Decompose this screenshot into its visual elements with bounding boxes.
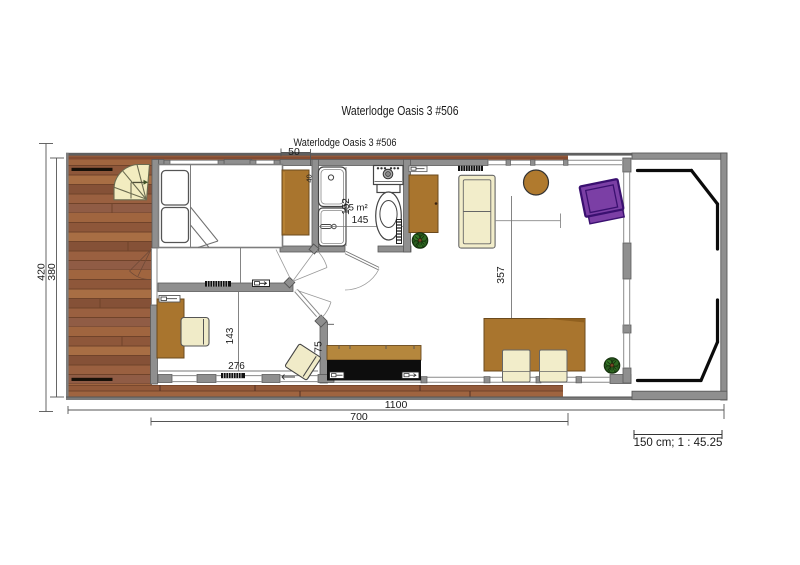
svg-text:357: 357 xyxy=(495,266,507,284)
svg-text:50: 50 xyxy=(288,146,300,158)
svg-text:276: 276 xyxy=(228,361,245,372)
svg-text:40: 40 xyxy=(305,174,314,182)
svg-text:380: 380 xyxy=(46,263,58,281)
svg-text:Waterlodge Oasis 3 #506: Waterlodge Oasis 3 #506 xyxy=(342,104,459,118)
svg-text:145: 145 xyxy=(352,215,369,226)
svg-text:Waterlodge Oasis 3 #506: Waterlodge Oasis 3 #506 xyxy=(294,137,397,149)
svg-text:150 cm; 1 : 45.25: 150 cm; 1 : 45.25 xyxy=(634,437,723,449)
svg-text:1100: 1100 xyxy=(385,399,408,411)
svg-text:700: 700 xyxy=(350,411,368,423)
svg-text:75: 75 xyxy=(313,341,325,353)
svg-text:143: 143 xyxy=(225,327,236,344)
svg-text:15 m²: 15 m² xyxy=(343,203,367,214)
